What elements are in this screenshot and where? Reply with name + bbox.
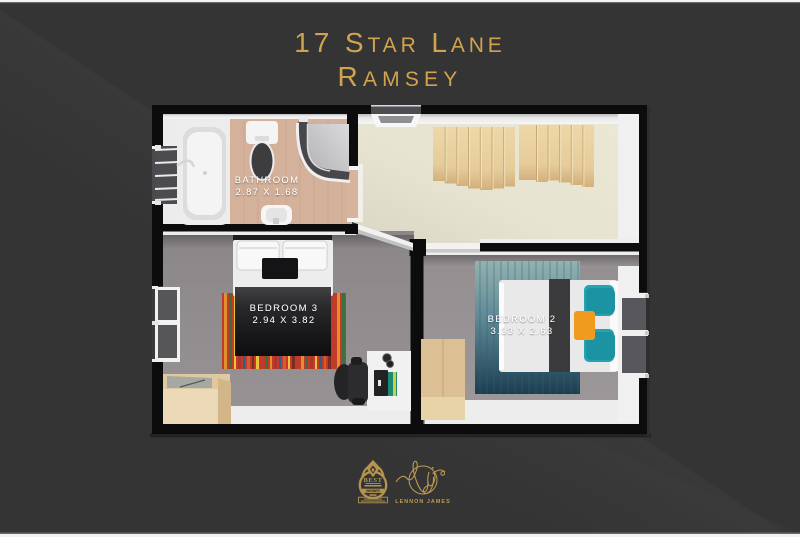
svg-text:BATHROOM: BATHROOM: [235, 175, 300, 186]
svg-text:3.33 X 2.63: 3.33 X 2.63: [491, 326, 554, 337]
svg-text:2.94 X 3.82: 2.94 X 3.82: [253, 315, 316, 326]
svg-text:WINNER: WINNER: [366, 489, 380, 493]
svg-text:BEDROOM 3: BEDROOM 3: [250, 303, 319, 314]
svg-text:BEST: BEST: [363, 477, 382, 484]
svg-text:BEDROOM 2: BEDROOM 2: [488, 314, 557, 325]
svg-text:LENNON JAMES: LENNON JAMES: [395, 499, 450, 505]
svg-text:2.87 X 1.68: 2.87 X 1.68: [236, 187, 299, 198]
